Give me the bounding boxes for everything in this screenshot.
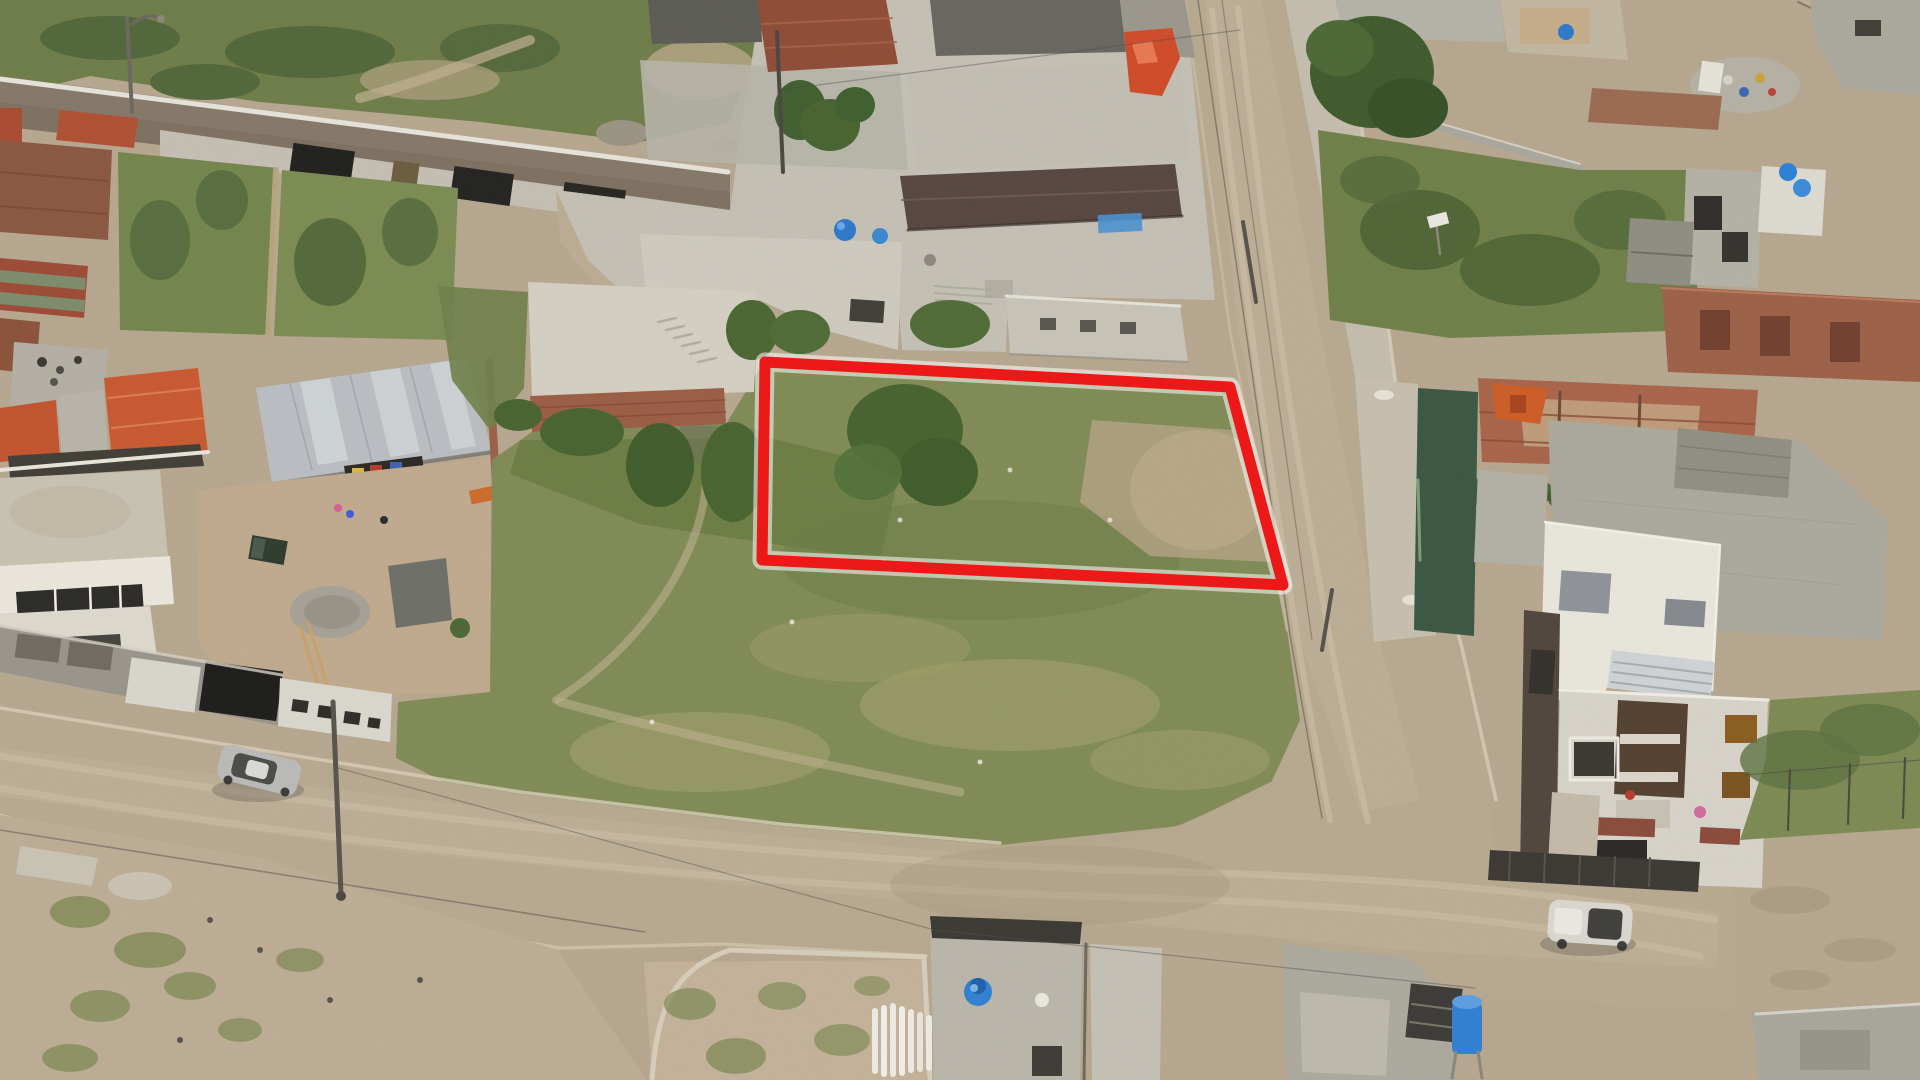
aerial-photo	[0, 0, 1920, 1080]
aerial-photo-stage: Aerial drone photograph of a vacant gras…	[0, 0, 1920, 1080]
photo-grain-overlay	[0, 0, 1920, 1080]
